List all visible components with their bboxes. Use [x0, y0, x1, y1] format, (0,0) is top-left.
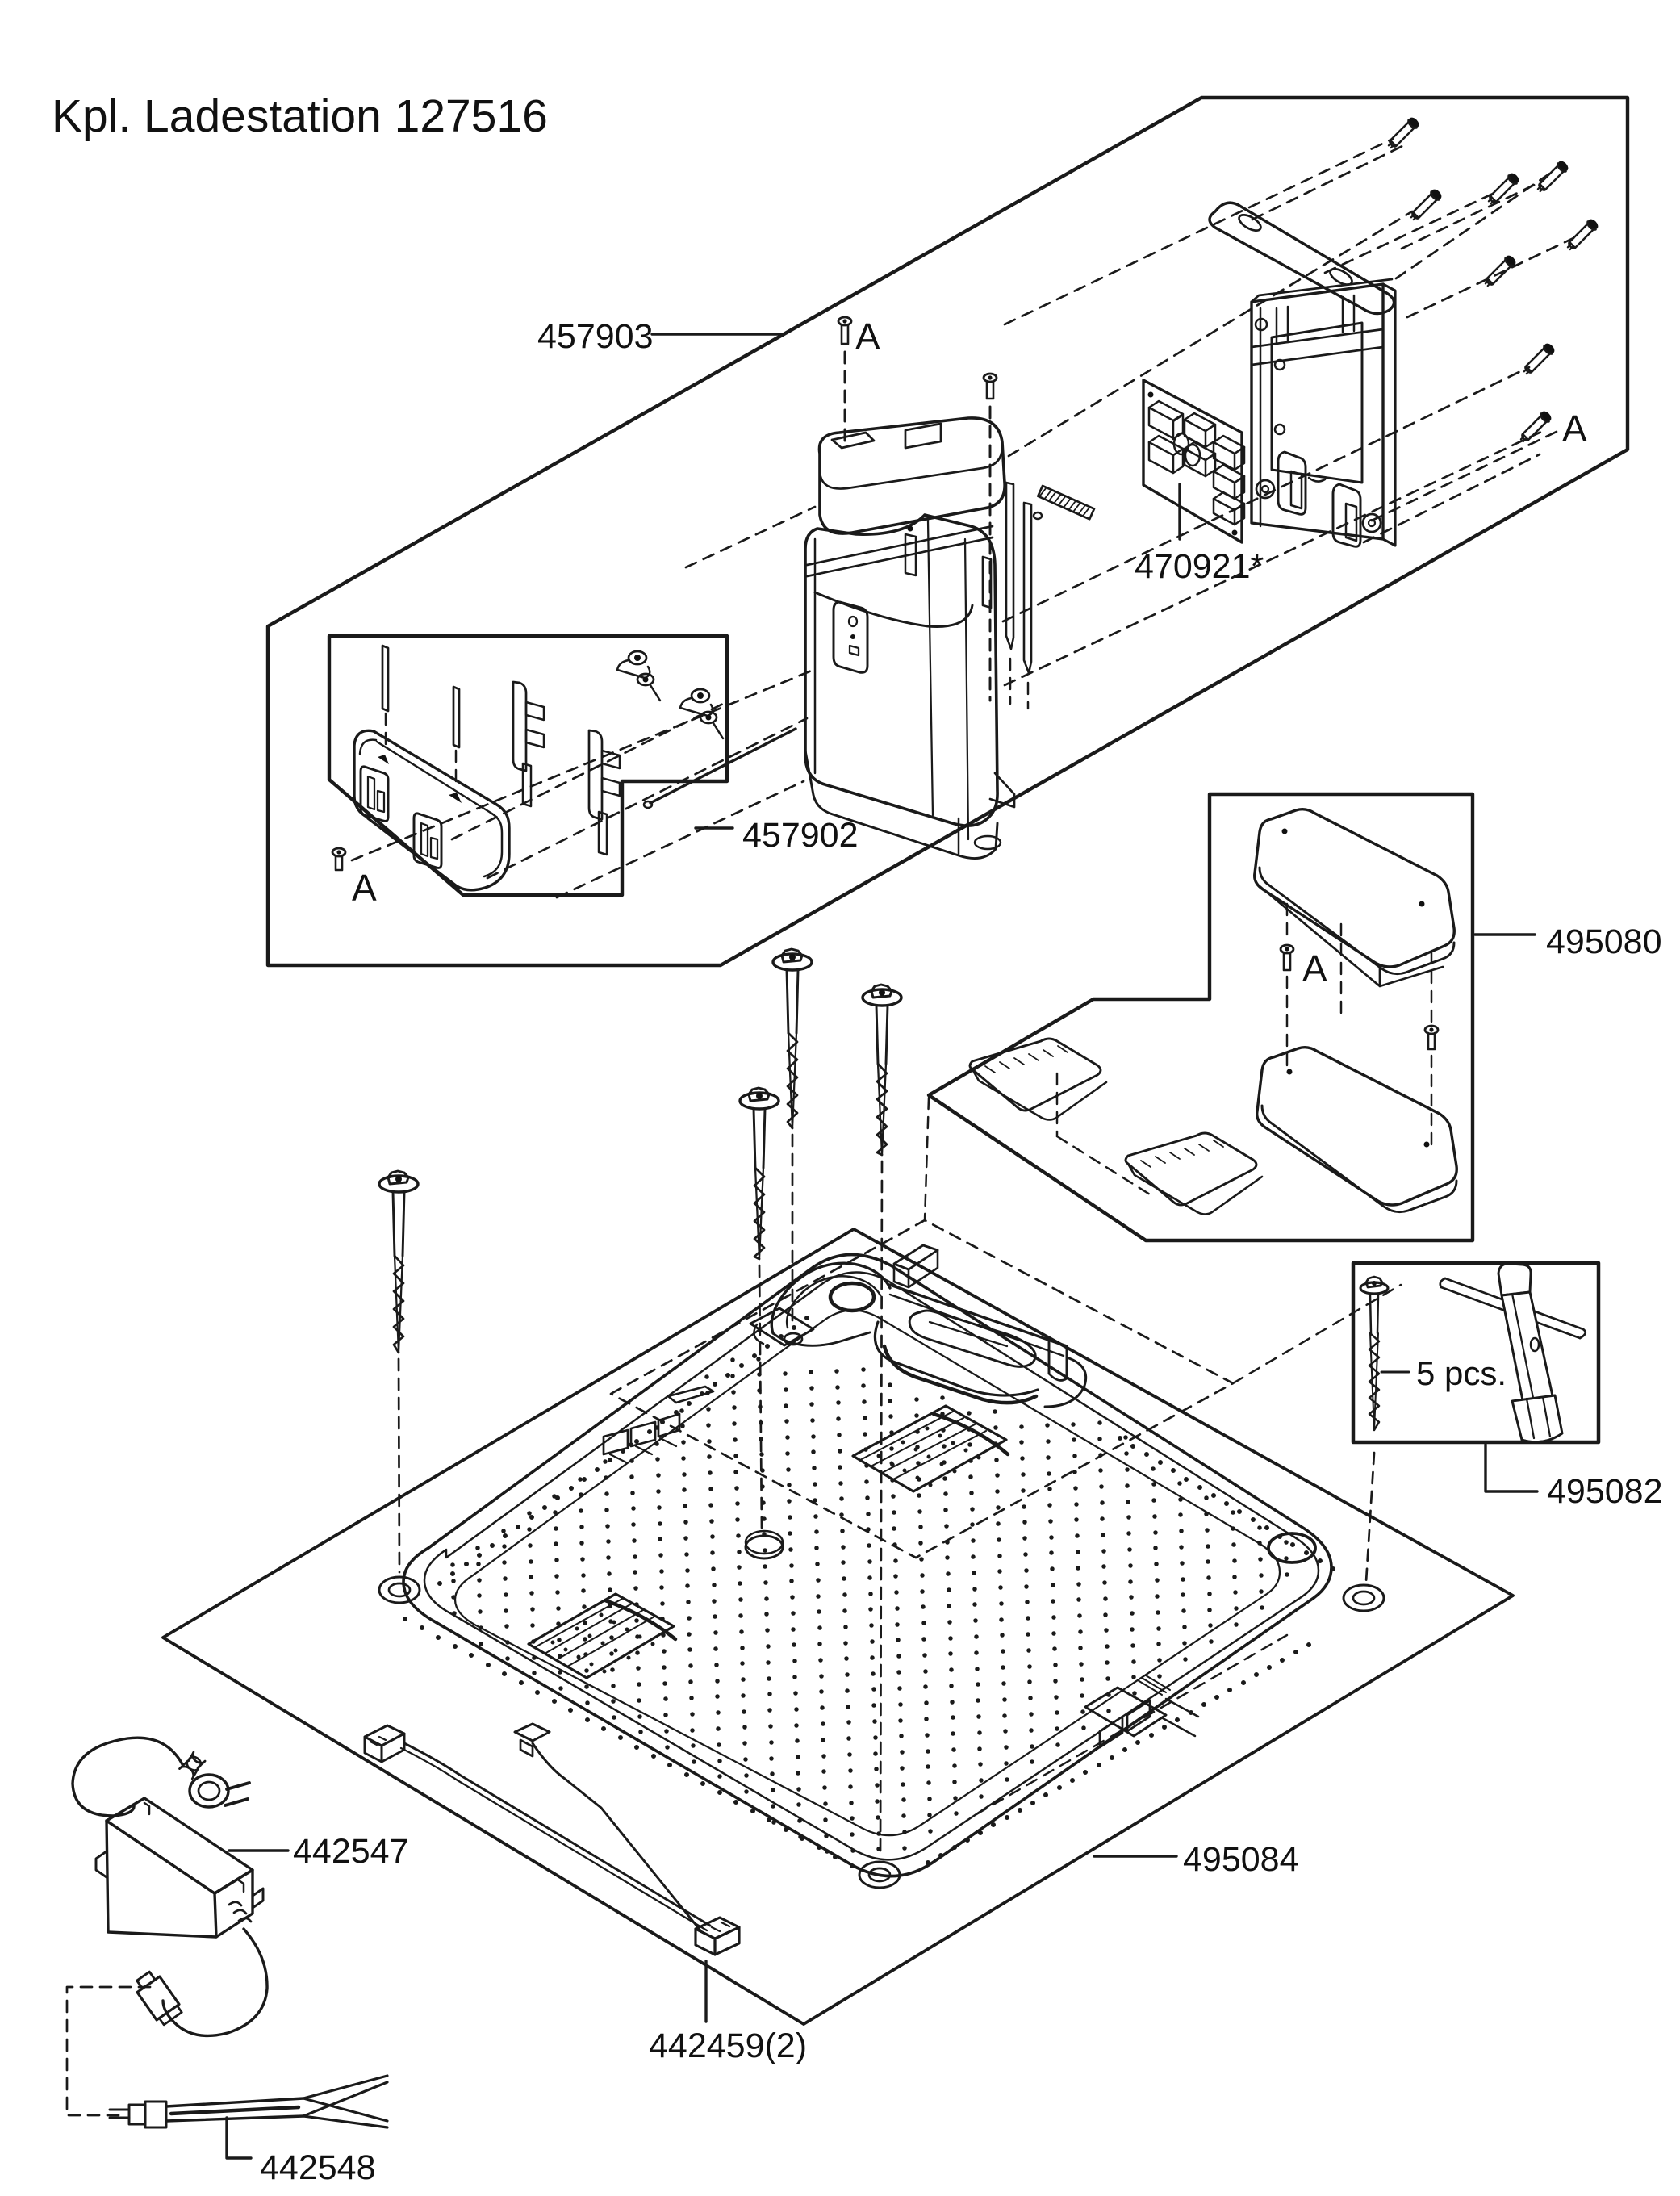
- svg-text:A: A: [855, 316, 880, 358]
- svg-text:495080: 495080: [1546, 922, 1662, 961]
- svg-text:A: A: [1302, 947, 1327, 989]
- svg-text:457903: 457903: [537, 317, 654, 356]
- svg-text:A: A: [352, 867, 377, 909]
- svg-text:442459(2): 442459(2): [649, 2027, 807, 2065]
- svg-text:A: A: [1562, 408, 1587, 450]
- svg-text:495082: 495082: [1547, 1472, 1663, 1511]
- svg-text:5 pcs.: 5 pcs.: [1416, 1354, 1507, 1392]
- svg-text:470921*: 470921*: [1135, 547, 1264, 586]
- svg-text:Kpl. Ladestation 127516: Kpl. Ladestation 127516: [52, 90, 548, 142]
- svg-text:442547: 442547: [293, 1832, 409, 1871]
- svg-text:457902: 457902: [742, 816, 859, 855]
- svg-text:495084: 495084: [1183, 1840, 1299, 1879]
- svg-text:442548: 442548: [260, 2148, 376, 2187]
